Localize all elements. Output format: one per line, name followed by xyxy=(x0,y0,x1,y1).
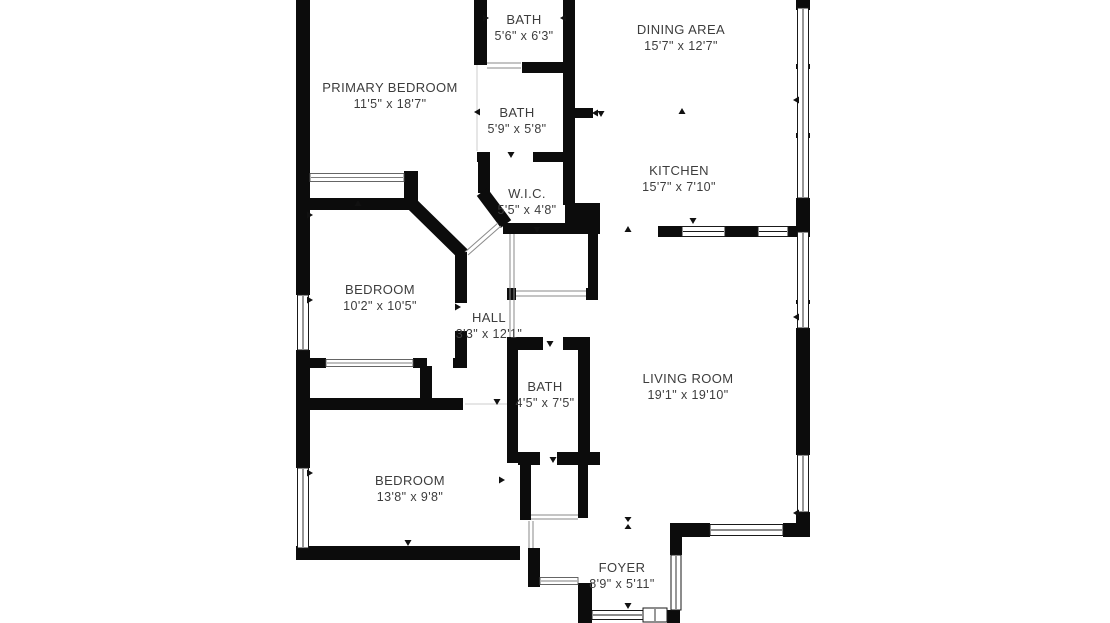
room-name: LIVING ROOM xyxy=(642,370,733,387)
room-label-bedroom-1: BEDROOM 10'2" x 10'5" xyxy=(343,281,417,315)
room-dimensions: 10'2" x 10'5" xyxy=(343,298,417,315)
room-name: W.I.C. xyxy=(497,185,556,202)
room-label-bath-middle: BATH 5'9" x 5'8" xyxy=(487,104,546,138)
room-dimensions: 3'3" x 12'1" xyxy=(456,326,522,343)
room-label-dining-area: DINING AREA 15'7" x 12'7" xyxy=(637,21,725,55)
room-label-living-room: LIVING ROOM 19'1" x 19'10" xyxy=(642,370,733,404)
room-label-kitchen: KITCHEN 15'7" x 7'10" xyxy=(642,162,716,196)
room-dimensions: 15'7" x 12'7" xyxy=(637,38,725,55)
room-name: KITCHEN xyxy=(642,162,716,179)
room-name: BATH xyxy=(515,378,574,395)
room-label-wic: W.I.C. 5'5" x 4'8" xyxy=(497,185,556,219)
room-dimensions: 5'5" x 4'8" xyxy=(497,202,556,219)
room-dimensions: 15'7" x 7'10" xyxy=(642,179,716,196)
room-dimensions: 19'1" x 19'10" xyxy=(642,387,733,404)
room-label-bath-top: BATH 5'6" x 6'3" xyxy=(494,11,553,45)
room-label-primary-bedroom: PRIMARY BEDROOM 11'5" x 18'7" xyxy=(322,79,458,113)
room-label-bath-lower: BATH 4'5" x 7'5" xyxy=(515,378,574,412)
room-label-bedroom-2: BEDROOM 13'8" x 9'8" xyxy=(375,472,445,506)
room-name: BEDROOM xyxy=(375,472,445,489)
room-dimensions: 5'9" x 5'8" xyxy=(487,121,546,138)
room-dimensions: 8'9" x 5'11" xyxy=(589,576,654,593)
room-name: BATH xyxy=(494,11,553,28)
room-dimensions: 5'6" x 6'3" xyxy=(494,28,553,45)
room-name: FOYER xyxy=(589,559,654,576)
room-name: BEDROOM xyxy=(343,281,417,298)
room-dimensions: 11'5" x 18'7" xyxy=(322,96,458,113)
floor-plan: BATH 5'6" x 6'3" DINING AREA 15'7" x 12'… xyxy=(0,0,1110,623)
room-name: HALL xyxy=(456,309,522,326)
room-label-hall: HALL 3'3" x 12'1" xyxy=(456,309,522,343)
room-labels: BATH 5'6" x 6'3" DINING AREA 15'7" x 12'… xyxy=(0,0,1110,623)
room-name: PRIMARY BEDROOM xyxy=(322,79,458,96)
room-name: DINING AREA xyxy=(637,21,725,38)
room-name: BATH xyxy=(487,104,546,121)
room-dimensions: 4'5" x 7'5" xyxy=(515,395,574,412)
room-label-foyer: FOYER 8'9" x 5'11" xyxy=(589,559,654,593)
room-dimensions: 13'8" x 9'8" xyxy=(375,489,445,506)
